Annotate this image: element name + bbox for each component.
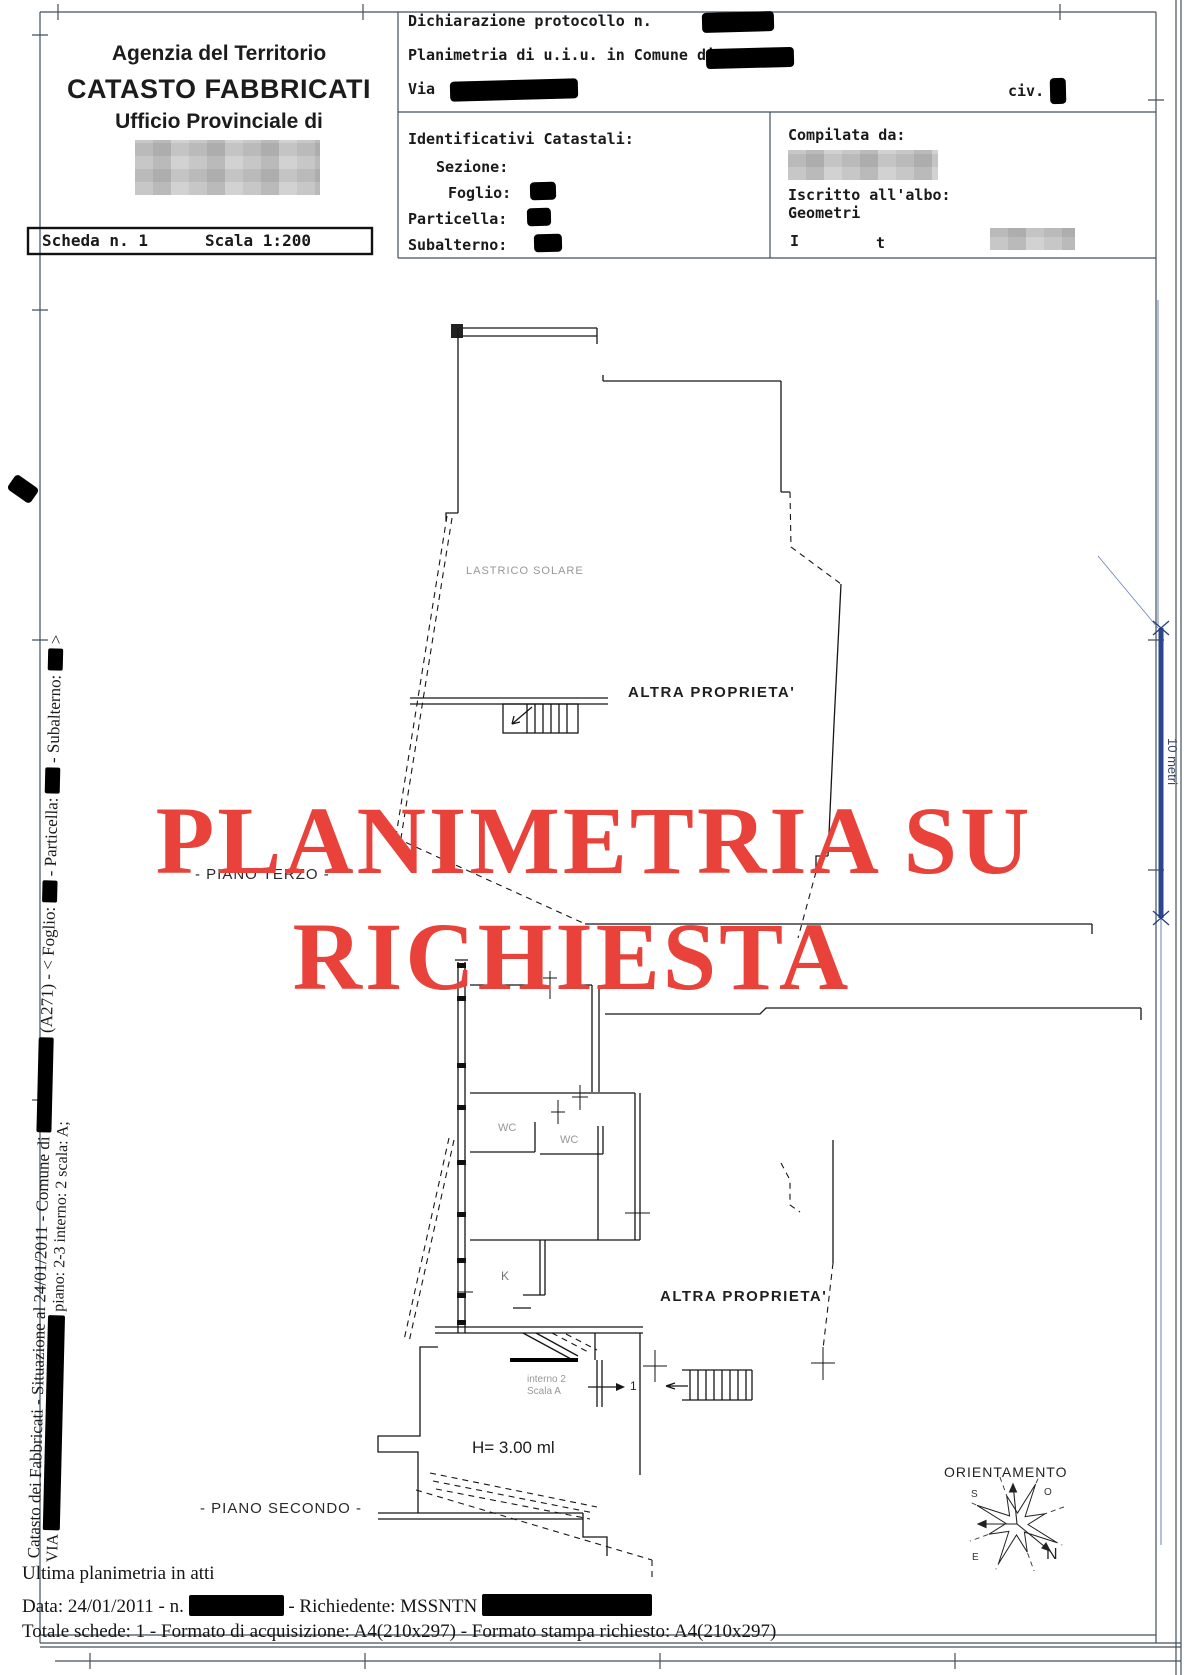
redaction-side-particella bbox=[45, 767, 61, 793]
scale-bar-label: 10 metri bbox=[1165, 738, 1180, 830]
redaction-compilata bbox=[788, 150, 938, 180]
side-l2-seg-b: piano: 2-3 interno: 2 scala: A; bbox=[50, 1121, 72, 1316]
agency-name: Agenzia del Territorio bbox=[40, 42, 398, 66]
redaction-foglio bbox=[530, 182, 556, 201]
civ-label: civ. bbox=[1008, 82, 1044, 100]
compass-e-label: E bbox=[972, 1552, 979, 1563]
iscritto-value: Geometri bbox=[788, 204, 860, 222]
ufficio-label: Ufficio Provinciale di bbox=[40, 110, 398, 134]
lastrico-solare-label: LASTRICO SOLARE bbox=[466, 565, 584, 577]
scheda-label: Scheda n. 1 bbox=[42, 231, 148, 250]
declaration-label: Dichiarazione protocollo n. bbox=[408, 12, 652, 30]
footer-l2-seg-b: - Richiedente: MSSNTN bbox=[284, 1596, 482, 1617]
side-l1-seg-e: > bbox=[46, 634, 65, 648]
compass-s-label: S bbox=[971, 1489, 978, 1500]
compilata-label: Compilata da: bbox=[788, 126, 905, 144]
compass-o-label: O bbox=[1044, 1487, 1052, 1498]
orientamento-label: ORIENTAMENTO bbox=[944, 1464, 1068, 1480]
stair-exit-number: 1 bbox=[630, 1379, 637, 1393]
redaction-ufficio bbox=[135, 140, 320, 195]
redaction-side-comune bbox=[36, 1037, 53, 1132]
footer-line2: Data: 24/01/2011 - n. - Richiedente: MSS… bbox=[22, 1594, 652, 1618]
redaction-side-subalterno bbox=[48, 648, 64, 670]
redaction-compilata-2 bbox=[990, 228, 1075, 250]
footer-line1: Ultima planimetria in atti bbox=[22, 1563, 215, 1585]
redaction-comune bbox=[706, 47, 794, 69]
redaction-protocollo bbox=[702, 11, 774, 33]
footer-line3: Totale schede: 1 - Formato di acquisizio… bbox=[22, 1621, 776, 1643]
footer-l2-seg-a: Data: 24/01/2011 - n. bbox=[22, 1596, 189, 1617]
side-l2-seg-a: VIA bbox=[44, 1530, 62, 1562]
redaction-via bbox=[450, 78, 578, 101]
scala-label: Scala 1:200 bbox=[205, 231, 311, 250]
foglio-label: Foglio: bbox=[448, 184, 511, 202]
compilata-partial-right: t bbox=[876, 234, 885, 252]
wc-label-1: WC bbox=[498, 1122, 516, 1134]
altra-proprieta-label-2: ALTRA PROPRIETA' bbox=[660, 1288, 827, 1305]
altra-proprieta-label-1: ALTRA PROPRIETA' bbox=[628, 684, 795, 701]
redaction-side-foglio bbox=[42, 880, 58, 902]
compass-n-label: N bbox=[1046, 1546, 1058, 1564]
compilata-partial-left: I bbox=[790, 232, 799, 250]
catasto-title: CATASTO FABBRICATI bbox=[40, 74, 398, 105]
via-label: Via bbox=[408, 80, 435, 98]
height-label: H= 3.00 ml bbox=[472, 1438, 555, 1458]
redaction-footer-n bbox=[189, 1595, 284, 1616]
agency-block: Agenzia del Territorio CATASTO FABBRICAT… bbox=[40, 0, 398, 230]
kitchen-label: K bbox=[501, 1269, 509, 1283]
cadastral-document-page: Agenzia del Territorio CATASTO FABBRICAT… bbox=[0, 0, 1188, 1675]
identificativi-title: Identificativi Catastali: bbox=[408, 130, 634, 148]
redaction-particella bbox=[527, 208, 551, 227]
scala-a-label: Scala A bbox=[527, 1386, 561, 1397]
redaction-footer-richiedente bbox=[482, 1594, 652, 1616]
particella-label: Particella: bbox=[408, 210, 507, 228]
sezione-label: Sezione: bbox=[436, 158, 508, 176]
subalterno-label: Subalterno: bbox=[408, 236, 507, 254]
watermark-line1: PLANIMETRIA SU bbox=[0, 793, 1188, 889]
wc-label-2: WC bbox=[560, 1134, 578, 1146]
redaction-subalterno bbox=[534, 234, 562, 253]
watermark-line2: RICHIESTA bbox=[0, 909, 1166, 1005]
planimetria-label: Planimetria di u.i.u. in Comune di bbox=[408, 46, 715, 64]
piano-secondo-label: - PIANO SECONDO - bbox=[200, 1500, 362, 1517]
interno-label: interno 2 bbox=[527, 1374, 566, 1385]
redaction-civ bbox=[1050, 78, 1067, 104]
iscritto-label: Iscritto all'albo: bbox=[788, 186, 951, 204]
